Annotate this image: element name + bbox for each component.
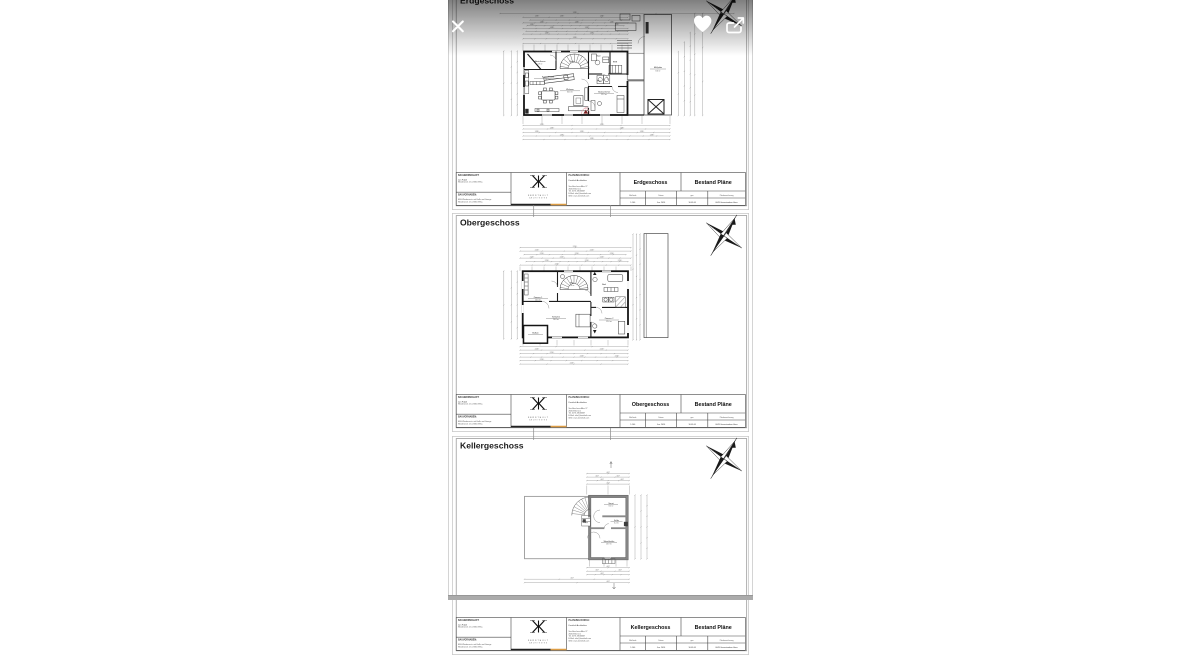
svg-text:Kerstholt Architekten: Kerstholt Architekten xyxy=(569,624,587,627)
svg-text:KERSTHOLT: KERSTHOLT xyxy=(528,640,549,642)
svg-text:Wiedenerstr. 23, 23361 Wiha: Wiedenerstr. 23, 23361 Wiha xyxy=(458,626,483,629)
svg-text:Wiedenerstr. 23, 23361 Wiha: Wiedenerstr. 23, 23361 Wiha xyxy=(458,646,483,649)
svg-text:Planbezeichnung: Planbezeichnung xyxy=(720,640,734,642)
svg-text:Web: www.kerstholt.com: Web: www.kerstholt.com xyxy=(569,640,590,643)
svg-text:Bestand Pläne: Bestand Pläne xyxy=(695,625,732,631)
svg-text:6049 Gesamtumbau Haus: 6049 Gesamtumbau Haus xyxy=(716,646,738,649)
svg-text:BAUHERRSCHAFT:: BAUHERRSCHAFT: xyxy=(458,619,480,622)
svg-text:Maßstab: Maßstab xyxy=(629,639,636,642)
svg-text:10.01.06: 10.01.06 xyxy=(689,647,696,649)
svg-text:Datum: Datum xyxy=(658,639,664,642)
svg-text:PLANUNG DURCH:: PLANUNG DURCH: xyxy=(569,619,590,622)
svg-text:Jan. 2016: Jan. 2016 xyxy=(657,647,665,649)
svg-text:Kellergeschoss: Kellergeschoss xyxy=(631,625,671,631)
svg-text:BAUVORHABEN:: BAUVORHABEN: xyxy=(458,639,477,642)
svg-text:gez.: gez. xyxy=(690,640,694,642)
svg-text:1:100: 1:100 xyxy=(630,647,635,649)
